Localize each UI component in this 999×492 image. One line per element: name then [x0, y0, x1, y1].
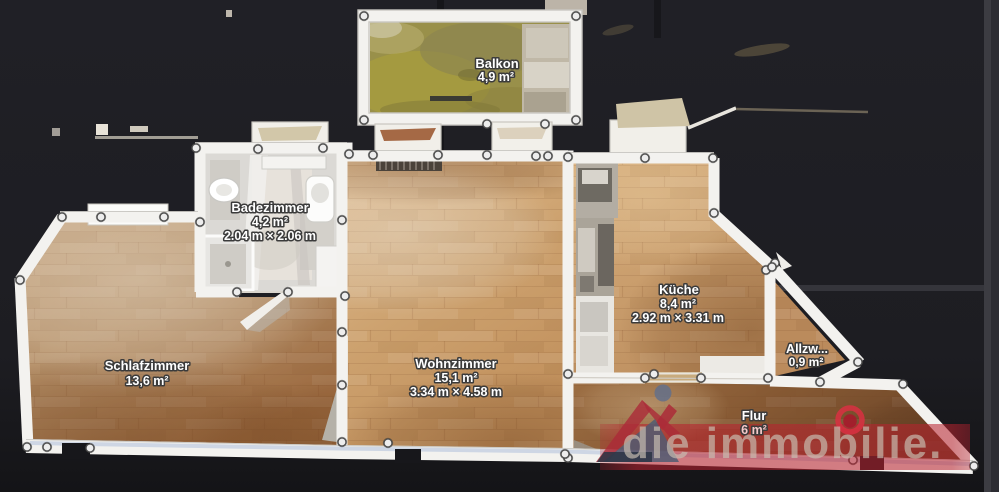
svg-text:Wohnzimmer: Wohnzimmer [415, 356, 496, 371]
svg-text:Balkon: Balkon [475, 56, 518, 71]
svg-text:15,1 m²: 15,1 m² [434, 371, 477, 385]
svg-text:die immobilie.: die immobilie. [622, 419, 943, 468]
svg-text:4,9 m²: 4,9 m² [478, 70, 514, 84]
svg-text:2.92 m × 3.31 m: 2.92 m × 3.31 m [632, 311, 724, 325]
svg-text:Allzw...: Allzw... [786, 342, 828, 356]
svg-text:2.04 m × 2.06 m: 2.04 m × 2.06 m [224, 229, 316, 243]
svg-text:0,9 m²: 0,9 m² [789, 355, 824, 369]
svg-text:3.34 m × 4.58 m: 3.34 m × 4.58 m [410, 385, 502, 399]
svg-text:Flur: Flur [742, 408, 767, 423]
svg-text:Küche: Küche [659, 282, 699, 297]
svg-text:8,4 m²: 8,4 m² [660, 297, 696, 311]
svg-text:Badezimmer: Badezimmer [231, 200, 308, 215]
svg-text:6 m²: 6 m² [741, 423, 767, 437]
svg-text:4,2 m²: 4,2 m² [252, 215, 288, 229]
svg-text:Schlafzimmer: Schlafzimmer [105, 358, 190, 373]
svg-text:13,6 m²: 13,6 m² [125, 374, 168, 388]
